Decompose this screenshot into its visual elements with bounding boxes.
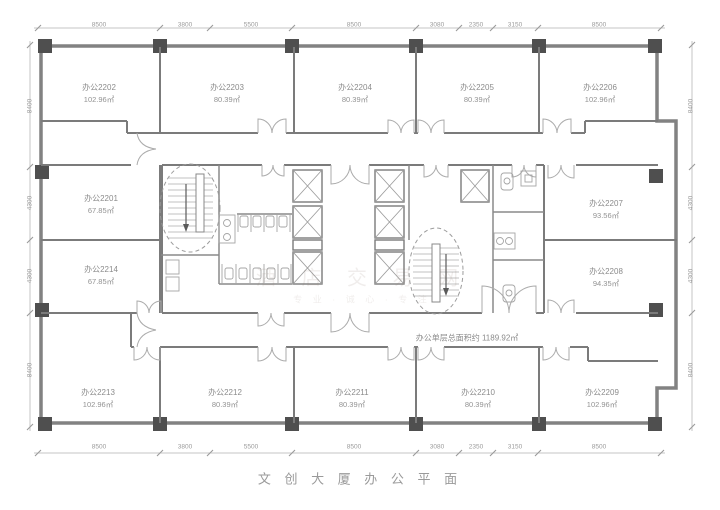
- room-label-2203: 办公220380.39㎡: [210, 82, 244, 106]
- room-area: 80.39㎡: [460, 94, 494, 106]
- bathroom-fixtures-right: [494, 171, 536, 302]
- dim-label-top: 3150: [508, 22, 522, 29]
- dim-label-bottom: 3800: [178, 444, 192, 451]
- room-name: 办公2205: [460, 82, 494, 94]
- door-swing-arcs: [134, 119, 574, 361]
- room-label-2208: 办公220894.35㎡: [589, 266, 623, 290]
- room-name: 办公2204: [338, 82, 372, 94]
- room-label-2211: 办公221180.39㎡: [335, 387, 368, 411]
- dim-label-left: 4300: [27, 269, 34, 283]
- dim-label-bottom: 2350: [469, 444, 483, 451]
- dim-label-right: 4300: [688, 269, 695, 283]
- room-area: 80.39㎡: [461, 399, 495, 411]
- dim-label-bottom: 8500: [347, 444, 361, 451]
- page-title: 文 创 大 厦 办 公 平 面: [258, 469, 462, 488]
- dim-label-top: 2350: [469, 22, 483, 29]
- room-name: 办公2209: [585, 387, 619, 399]
- floor-plan-linework: [0, 0, 720, 510]
- room-name: 办公2208: [589, 266, 623, 278]
- room-name: 办公2214: [84, 264, 118, 276]
- room-label-2202: 办公2202102.96㎡: [82, 82, 116, 106]
- room-label-2205: 办公220580.39㎡: [460, 82, 494, 106]
- dim-label-right: 8400: [688, 99, 695, 113]
- dim-label-bottom: 8500: [592, 444, 606, 451]
- dim-label-bottom: 8500: [92, 444, 106, 451]
- room-name: 办公2211: [335, 387, 368, 399]
- dim-label-left: 8400: [27, 99, 34, 113]
- room-label-2213: 办公2213102.96㎡: [81, 387, 115, 411]
- room-name: 办公2210: [461, 387, 495, 399]
- dim-label-top: 3080: [430, 22, 444, 29]
- room-label-2207: 办公220793.56㎡: [589, 198, 623, 222]
- room-name: 办公2213: [81, 387, 115, 399]
- floor-plan-canvas: 酒 店 交 易 网 专 业 · 诚 心 · 专 注 办公单层总面积约 1189.…: [0, 0, 720, 510]
- room-label-2204: 办公220480.39㎡: [338, 82, 372, 106]
- dim-label-top: 3800: [178, 22, 192, 29]
- room-label-2214: 办公221467.85㎡: [84, 264, 118, 288]
- elevator-single: [461, 170, 489, 202]
- room-label-2210: 办公221080.39㎡: [461, 387, 495, 411]
- dim-label-top: 5500: [244, 22, 258, 29]
- dim-label-left: 8400: [27, 363, 34, 377]
- dim-label-right: 8400: [688, 363, 695, 377]
- room-area: 80.39㎡: [208, 399, 242, 411]
- dim-label-bottom: 3150: [508, 444, 522, 451]
- dim-label-top: 8500: [347, 22, 361, 29]
- room-area: 102.96㎡: [82, 94, 116, 106]
- room-label-2212: 办公221280.39㎡: [208, 387, 242, 411]
- room-area: 94.35㎡: [589, 278, 623, 290]
- room-area: 80.39㎡: [338, 94, 372, 106]
- room-name: 办公2201: [84, 193, 118, 205]
- watermark-line2: 专 业 · 诚 心 · 专 注: [293, 293, 431, 306]
- room-area: 93.56㎡: [589, 210, 623, 222]
- room-name: 办公2202: [82, 82, 116, 94]
- room-area: 102.96㎡: [81, 399, 115, 411]
- room-name: 办公2203: [210, 82, 244, 94]
- dim-label-top: 8500: [592, 22, 606, 29]
- room-name: 办公2212: [208, 387, 242, 399]
- dim-label-left: 4300: [27, 196, 34, 210]
- room-area: 80.39㎡: [210, 94, 244, 106]
- room-area: 67.85㎡: [84, 276, 118, 288]
- dim-label-bottom: 3080: [430, 444, 444, 451]
- room-area: 80.39㎡: [335, 399, 368, 411]
- room-area: 102.96㎡: [585, 399, 619, 411]
- dim-label-right: 4300: [688, 196, 695, 210]
- room-area: 102.96㎡: [583, 94, 617, 106]
- watermark-line1: 酒 店 交 易 网: [256, 262, 468, 291]
- room-name: 办公2206: [583, 82, 617, 94]
- dim-label-bottom: 5500: [244, 444, 258, 451]
- room-label-2209: 办公2209102.96㎡: [585, 387, 619, 411]
- room-label-2201: 办公220167.85㎡: [84, 193, 118, 217]
- room-area: 67.85㎡: [84, 205, 118, 217]
- room-label-2206: 办公2206102.96㎡: [583, 82, 617, 106]
- room-name: 办公2207: [589, 198, 623, 210]
- dim-label-top: 8500: [92, 22, 106, 29]
- total-area-label: 办公单层总面积约 1189.92㎡: [416, 333, 519, 344]
- stair-left-icon: [160, 164, 220, 252]
